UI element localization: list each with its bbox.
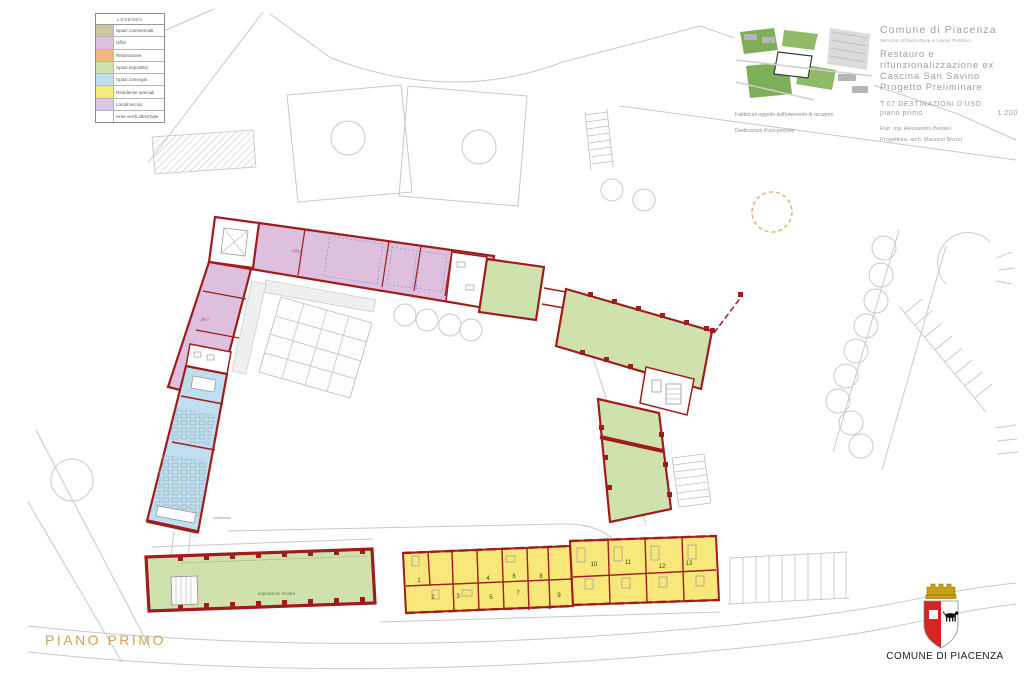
shield-icon [924,601,959,648]
rup-name: Rup: ing. Alessandro Bertani [880,126,1018,132]
sheet-subtitle-row: piano primo 1:200 [880,110,1018,117]
project-title-line: Cascina San Savino [880,71,1018,82]
municipality-caption: COMUNE DI PIACENZA [880,651,1010,662]
title-department: Servizio Infrastrutture e Lavori Pubblic… [880,38,1018,43]
courtyard-pergola [232,280,376,398]
legend-item-label: Residenze speciali [114,86,164,97]
title-municipality: Comune di Piacenza [880,24,1018,36]
wing-left-conference: conferenze [147,366,231,532]
tree-circle-highlighted [752,192,792,232]
legend-item-label: Uffici [114,37,164,48]
svg-text:10: 10 [591,562,598,568]
legend-item: Spazi commerciali [96,25,164,37]
hatched-roof-area [152,130,256,174]
legend-item-label: Spazi convegni [114,74,164,85]
legend-swatch [96,25,114,36]
site-plan-thumbnail [734,24,874,104]
sheet-title: T.07 DESTINAZIONI D'USO [880,101,1018,108]
legend-item-label: Spazi espositivi [114,62,164,73]
legend-swatch [96,111,114,122]
parking-stalls [728,233,1018,604]
legend-item: Residenze speciali [96,86,164,98]
building-residences: 1 2 3 4 5 6 7 8 9 10 11 12 13 [403,536,719,613]
crown-icon [926,584,956,599]
legend-swatch [96,99,114,110]
legend-swatch [96,74,114,85]
project-title: Restauro e rifunzionalizzazione ex Casci… [880,49,1018,93]
sheet-code: T.07 [880,101,896,108]
legend-swatch [96,62,114,73]
project-title-line: Restauro e [880,49,1018,60]
project-title-line: Progetto Preliminare [880,82,1018,93]
architectural-drawing-sheet: uffici uffici conferenze [0,0,1024,683]
room-label-conference: conferenze [213,516,231,520]
thumbnail-caption-1: Fabbricati oggetto dell'intervento di re… [735,112,834,118]
legend-item-label: Spazi commerciali [114,25,164,36]
room-label-exhibition-hall: esposizioni mostre [258,591,296,596]
legend-item: Spazi espositivi [96,62,164,74]
coat-of-arms [915,583,967,651]
outdoor-stair-top [585,109,614,170]
svg-text:13: 13 [686,561,693,567]
legend-item: Uffici [96,37,164,49]
legend-item: Locali tecnici [96,99,164,111]
sheet-scale: 1:200 [997,110,1018,117]
floor-label: PIANO PRIMO [45,632,166,648]
legend: LEGENDA Spazi commerciali Uffici Ristora… [95,13,165,123]
legend-item-label: Aree verdi attrezzate [114,111,164,122]
project-title-line: rifunzionalizzazione ex [880,60,1018,71]
legend-item-label: Locali tecnici [114,99,164,110]
legend-item: Ristorazione [96,50,164,62]
building-exhibition-south: esposizioni mostre [146,548,375,611]
title-block-text: Comune di Piacenza Servizio Infrastruttu… [880,24,1018,143]
legend-item-label: Ristorazione [114,50,164,61]
thumbnail-caption-2: Destinazioni d'uso previste [735,128,794,134]
legend-swatch [96,37,114,48]
legend-swatch [96,86,114,97]
sheet-name: DESTINAZIONI D'USO [898,101,981,108]
room-exhibition-small [479,259,544,320]
legend-item: Aree verdi attrezzate [96,111,164,122]
designer-name: Progettista: arch. Maurizio Bruzzi [880,137,1018,143]
stairwell-block [209,217,259,268]
wing-right-exhibition [598,399,711,522]
legend-swatch [96,50,114,61]
sheet-floor: piano primo [880,110,923,117]
legend-item: Spazi convegni [96,74,164,86]
legend-title: LEGENDA [96,14,164,25]
svg-text:11: 11 [625,560,632,566]
svg-text:12: 12 [659,564,666,570]
